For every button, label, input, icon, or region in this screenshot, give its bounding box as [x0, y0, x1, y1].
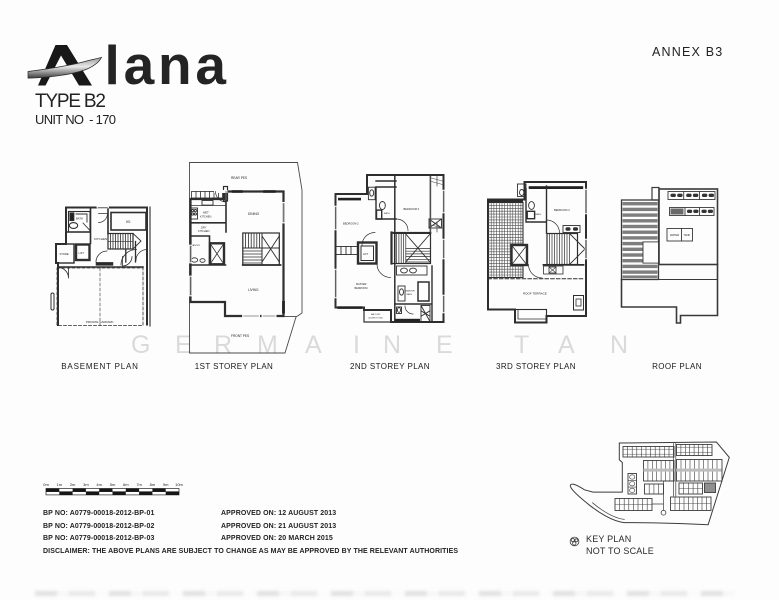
svg-text:ROOF TERRACE: ROOF TERRACE	[523, 292, 547, 296]
svg-text:7m: 7m	[136, 482, 142, 487]
svg-text:5m: 5m	[110, 482, 116, 487]
svg-text:DRY: DRY	[201, 226, 207, 230]
svg-text:WATER: WATER	[670, 233, 679, 237]
svg-text:FRONT PES: FRONT PES	[231, 334, 249, 338]
svg-text:KITCHEN: KITCHEN	[94, 237, 107, 241]
svg-text:BEDROOM 3: BEDROOM 3	[404, 207, 420, 211]
svg-text:BATH: BATH	[76, 217, 83, 221]
svg-text:3m: 3m	[83, 482, 89, 487]
svg-text:PANTRY: PANTRY	[192, 244, 201, 247]
svg-text:4m: 4m	[96, 482, 102, 487]
svg-text:BEDROOM 4: BEDROOM 4	[554, 208, 570, 212]
svg-text:(DOWN TO M2): (DOWN TO M2)	[369, 317, 384, 319]
svg-text:BATH: BATH	[536, 213, 542, 216]
svg-text:HS: HS	[126, 220, 130, 224]
svg-text:2m: 2m	[70, 482, 76, 487]
svg-text:LIFT: LIFT	[79, 251, 85, 255]
svg-text:MASTER: MASTER	[406, 290, 416, 293]
svg-text:TANK: TANK	[684, 233, 691, 237]
svg-text:10m: 10m	[175, 482, 183, 487]
svg-text:BEDROOM 2: BEDROOM 2	[343, 222, 359, 226]
svg-text:BATH: BATH	[407, 293, 413, 296]
svg-text:KITCHEN: KITCHEN	[200, 215, 212, 219]
svg-text:DINING: DINING	[248, 212, 260, 216]
svg-text:LIFT: LIFT	[363, 252, 369, 256]
svg-text:WET: WET	[203, 211, 209, 215]
svg-text:BALCONY: BALCONY	[371, 313, 381, 316]
svg-text:PRIVATE CARPARK: PRIVATE CARPARK	[86, 320, 114, 324]
svg-text:REAR PES: REAR PES	[231, 176, 247, 180]
svg-text:MASTER: MASTER	[356, 283, 367, 286]
svg-text:STORE: STORE	[60, 252, 69, 256]
svg-text:1m: 1m	[57, 482, 63, 487]
svg-text:6m: 6m	[123, 482, 129, 487]
svg-text:BEDROOM: BEDROOM	[355, 287, 368, 290]
svg-text:KITCHEN: KITCHEN	[198, 229, 210, 233]
svg-text:LIVING: LIVING	[248, 288, 259, 292]
svg-text:0m: 0m	[43, 482, 49, 487]
svg-text:BATH: BATH	[384, 212, 390, 215]
svg-text:9m: 9m	[163, 482, 169, 487]
svg-text:8m: 8m	[150, 482, 156, 487]
